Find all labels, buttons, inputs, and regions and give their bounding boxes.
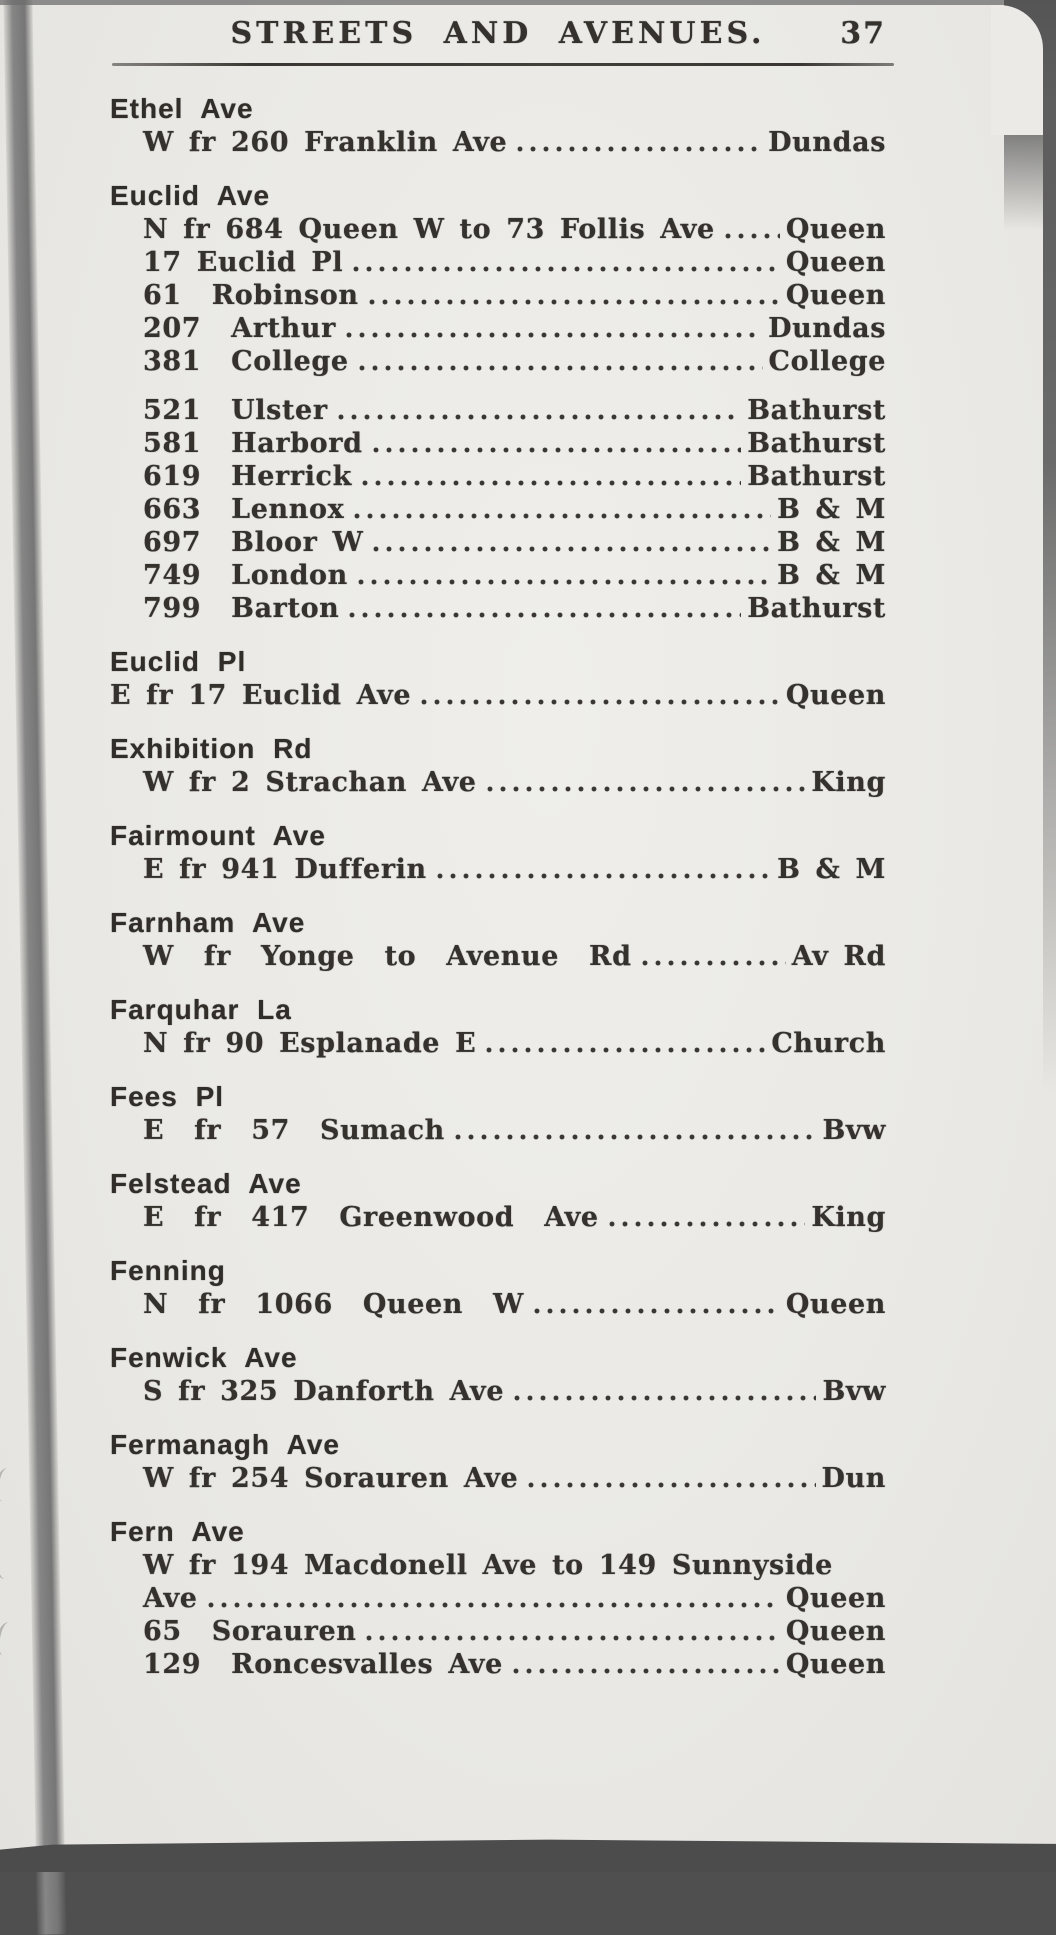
cross-street: Av Rd [792, 940, 886, 973]
leader-dots [208, 1602, 780, 1608]
street-line: W fr 2 Strachan Ave King [110, 766, 886, 799]
cross-street: Bvw [822, 1375, 886, 1408]
leader-dots [455, 1134, 817, 1140]
street-line: 17 Euclid Pl Queen [110, 246, 886, 279]
street-line: 799 Barton Bathurst [110, 592, 886, 625]
leader-dots [437, 873, 771, 879]
street-line: E fr 417 Greenwood Ave King [110, 1201, 886, 1234]
leader-dots [421, 699, 780, 705]
cross-street: College [769, 345, 886, 378]
street-line: E fr 941 Dufferin B & M [110, 853, 886, 886]
directory-entry: Fairmount Ave E fr 941 Dufferin B & M [110, 819, 886, 886]
leader-dots [366, 1635, 779, 1641]
street-line: 749 London B & M [110, 559, 886, 592]
street-heading: Fern Ave [110, 1515, 886, 1549]
street-heading: Fees Pl [110, 1080, 886, 1114]
street-line-text: E fr 57 Sumach [143, 1114, 445, 1147]
cross-street: King [811, 1201, 886, 1234]
cross-street: Bathurst [747, 460, 886, 493]
leader-dots [353, 266, 780, 272]
street-heading: Euclid Pl [110, 645, 886, 679]
cross-street: Church [771, 1027, 886, 1060]
street-line-text: 581 Harbord [143, 427, 363, 460]
leader-dots [642, 960, 786, 966]
street-line: N fr 1066 Queen W Queen [110, 1288, 886, 1321]
street-line: 619 Herrick Bathurst [110, 460, 886, 493]
street-line-text: 207 Arthur [143, 312, 336, 345]
directory-entry: Farquhar La N fr 90 Esplanade E Church [110, 993, 886, 1060]
street-heading: Fenning [110, 1254, 886, 1288]
leader-dots [513, 1668, 780, 1674]
street-line-text: 799 Barton [143, 592, 339, 625]
street-line-text: 17 Euclid Pl [143, 246, 343, 279]
cross-street: Queen [786, 1615, 886, 1648]
cross-street: Queen [786, 213, 886, 246]
street-line: E fr 17 Euclid Ave Queen [110, 679, 886, 712]
leader-dots [534, 1308, 780, 1314]
street-line: W fr Yonge to Avenue Rd Av Rd [110, 940, 886, 973]
leader-dots [514, 1395, 816, 1401]
street-line-text: E fr 17 Euclid Ave [110, 679, 411, 712]
leader-dots [609, 1221, 806, 1227]
leader-dots [373, 447, 742, 453]
margin-scribble [0, 1621, 18, 1658]
street-heading: Fairmount Ave [110, 819, 886, 853]
cross-street: B & M [777, 853, 886, 886]
scan-edge-bottom [0, 1836, 1056, 1872]
leader-dots [346, 332, 762, 338]
street-heading: Ethel Ave [110, 92, 886, 126]
street-line-text: 663 Lennox [143, 493, 344, 526]
street-line: N fr 90 Esplanade E Church [110, 1027, 886, 1060]
street-line: 663 Lennox B & M [110, 493, 886, 526]
street-line: Ave Queen [110, 1582, 886, 1615]
street-line: 207 Arthur Dundas [110, 312, 886, 345]
directory-entry: Fenning N fr 1066 Queen W Queen [110, 1254, 886, 1321]
street-line: 697 Bloor W B & M [110, 526, 886, 559]
cross-street: Queen [786, 1582, 886, 1615]
street-line: E fr 57 Sumach Bvw [110, 1114, 886, 1147]
margin-scribble [0, 1544, 14, 1580]
leader-dots [725, 233, 780, 239]
cross-street: Bathurst [747, 592, 886, 625]
leader-dots [358, 579, 771, 585]
leader-dots [517, 146, 762, 152]
street-line: 521 Ulster Bathurst [110, 394, 886, 427]
street-line: 581 Harbord Bathurst [110, 427, 886, 460]
cross-street: B & M [777, 526, 886, 559]
directory-entry: Exhibition Rd W fr 2 Strachan Ave King [110, 732, 886, 799]
street-line-text: 65 Sorauren [143, 1615, 356, 1648]
cross-street: Dundas [768, 312, 886, 345]
cross-street: King [811, 766, 886, 799]
page-rounded-corner [991, 5, 1043, 135]
street-line: 129 Roncesvalles Ave Queen [110, 1648, 886, 1681]
street-line-text: S fr 325 Danforth Ave [143, 1375, 504, 1408]
header-rule [112, 63, 894, 66]
leader-dots [362, 480, 741, 486]
directory-entry: Ethel Ave W fr 260 Franklin Ave Dundas [110, 92, 886, 159]
street-line: 381 College College [110, 345, 886, 378]
cross-street: Dun [822, 1462, 886, 1495]
street-heading: Exhibition Rd [110, 732, 886, 766]
street-line-text: N fr 1066 Queen W [143, 1288, 524, 1321]
street-line: S fr 325 Danforth Ave Bvw [110, 1375, 886, 1408]
leader-dots [349, 612, 741, 618]
street-line-text: E fr 941 Dufferin [143, 853, 427, 886]
street-line-text: 381 College [143, 345, 349, 378]
leader-dots [338, 414, 742, 420]
leader-dots [354, 513, 771, 519]
street-line-text: 697 Bloor W [143, 526, 363, 559]
street-line-text: W fr Yonge to Avenue Rd [143, 940, 632, 973]
cross-street: B & M [777, 493, 886, 526]
page-title: STREETS AND AVENUES. [231, 16, 766, 51]
directory-entry: Fern Ave W fr 194 Macdonell Ave to 149 S… [110, 1515, 886, 1681]
street-heading: Euclid Ave [110, 179, 886, 213]
street-line: 65 Sorauren Queen [110, 1615, 886, 1648]
street-line-text: 61 Robinson [143, 279, 359, 312]
directory-entry: Farnham Ave W fr Yonge to Avenue Rd Av R… [110, 906, 886, 973]
leader-dots [359, 365, 763, 371]
street-line: W fr 194 Macdonell Ave to 149 Sunnyside [110, 1549, 886, 1582]
street-line: W fr 260 Franklin Ave Dundas [110, 126, 886, 159]
street-line-text: 129 Roncesvalles Ave [143, 1648, 503, 1681]
leader-dots [369, 299, 780, 305]
directory-entry: Fermanagh Ave W fr 254 Sorauren Ave Dun [110, 1428, 886, 1495]
cross-street: Queen [786, 279, 886, 312]
street-line: W fr 254 Sorauren Ave Dun [110, 1462, 886, 1495]
street-line-text: W fr 260 Franklin Ave [143, 126, 507, 159]
street-line-text: 619 Herrick [143, 460, 352, 493]
street-line-text: E fr 417 Greenwood Ave [143, 1201, 599, 1234]
street-line-text: W fr 194 Macdonell Ave to 149 Sunnyside [143, 1549, 833, 1582]
street-line: 61 Robinson Queen [110, 279, 886, 312]
cross-street: Bathurst [747, 394, 886, 427]
leader-dots [528, 1482, 815, 1488]
street-line: N fr 684 Queen W to 73 Follis Ave Queen [110, 213, 886, 246]
directory-entry: Felstead Ave E fr 417 Greenwood Ave King [110, 1167, 886, 1234]
street-line-text: N fr 684 Queen W to 73 Follis Ave [143, 213, 715, 246]
street-heading: Fermanagh Ave [110, 1428, 886, 1462]
directory-entry: Euclid Pl E fr 17 Euclid Ave Queen [110, 645, 886, 712]
margin-scribble [0, 1467, 16, 1503]
leader-dots [487, 786, 806, 792]
street-heading: Farquhar La [110, 993, 886, 1027]
street-line-text: 521 Ulster [143, 394, 328, 427]
street-heading: Farnham Ave [110, 906, 886, 940]
page-header: STREETS AND AVENUES. 37 [110, 0, 886, 92]
street-line-text: 749 London [143, 559, 348, 592]
directory-entry-continued: 521 Ulster Bathurst 581 Harbord Bathurst… [110, 394, 886, 625]
leader-dots [486, 1047, 765, 1053]
directory-entry: Fenwick Ave S fr 325 Danforth Ave Bvw [110, 1341, 886, 1408]
scan-edge-top [0, 0, 1056, 5]
cross-street: Queen [786, 1288, 886, 1321]
cross-street: Bathurst [747, 427, 886, 460]
leader-dots [373, 546, 771, 552]
page-content: STREETS AND AVENUES. 37 Ethel Ave W fr 2… [110, 0, 886, 1681]
street-line-text: Ave [143, 1582, 198, 1615]
street-line-text: N fr 90 Esplanade E [143, 1027, 476, 1060]
street-heading: Fenwick Ave [110, 1341, 886, 1375]
cross-street: Queen [786, 1648, 886, 1681]
cross-street: Bvw [822, 1114, 886, 1147]
page-number: 37 [840, 16, 886, 51]
street-line-text: W fr 254 Sorauren Ave [143, 1462, 518, 1495]
cross-street: Dundas [768, 126, 886, 159]
cross-street: Queen [786, 246, 886, 279]
street-line-text: W fr 2 Strachan Ave [143, 766, 477, 799]
cross-street: B & M [777, 559, 886, 592]
street-heading: Felstead Ave [110, 1167, 886, 1201]
directory-entry: Fees Pl E fr 57 Sumach Bvw [110, 1080, 886, 1147]
directory-entry: Euclid Ave N fr 684 Queen W to 73 Follis… [110, 179, 886, 378]
scanned-directory-page: STREETS AND AVENUES. 37 Ethel Ave W fr 2… [0, 0, 1056, 1872]
cross-street: Queen [786, 679, 886, 712]
